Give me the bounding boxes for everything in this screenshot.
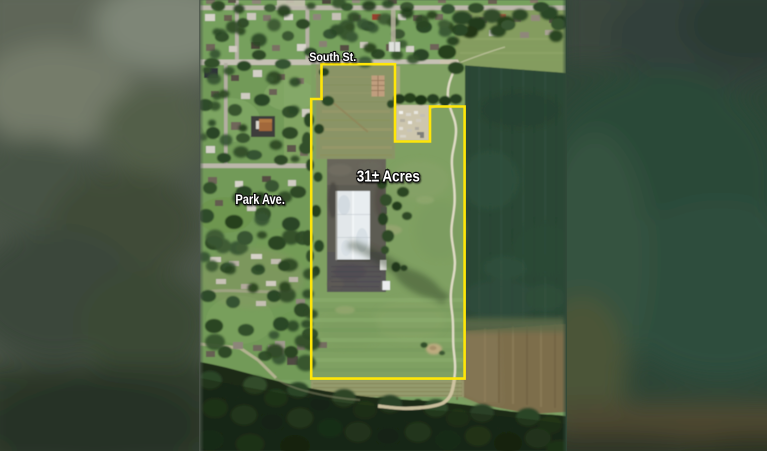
svg-text:South St.: South St. [309, 50, 356, 64]
svg-text:31± Acres: 31± Acres [357, 168, 420, 185]
svg-text:Park Ave.: Park Ave. [235, 192, 285, 208]
